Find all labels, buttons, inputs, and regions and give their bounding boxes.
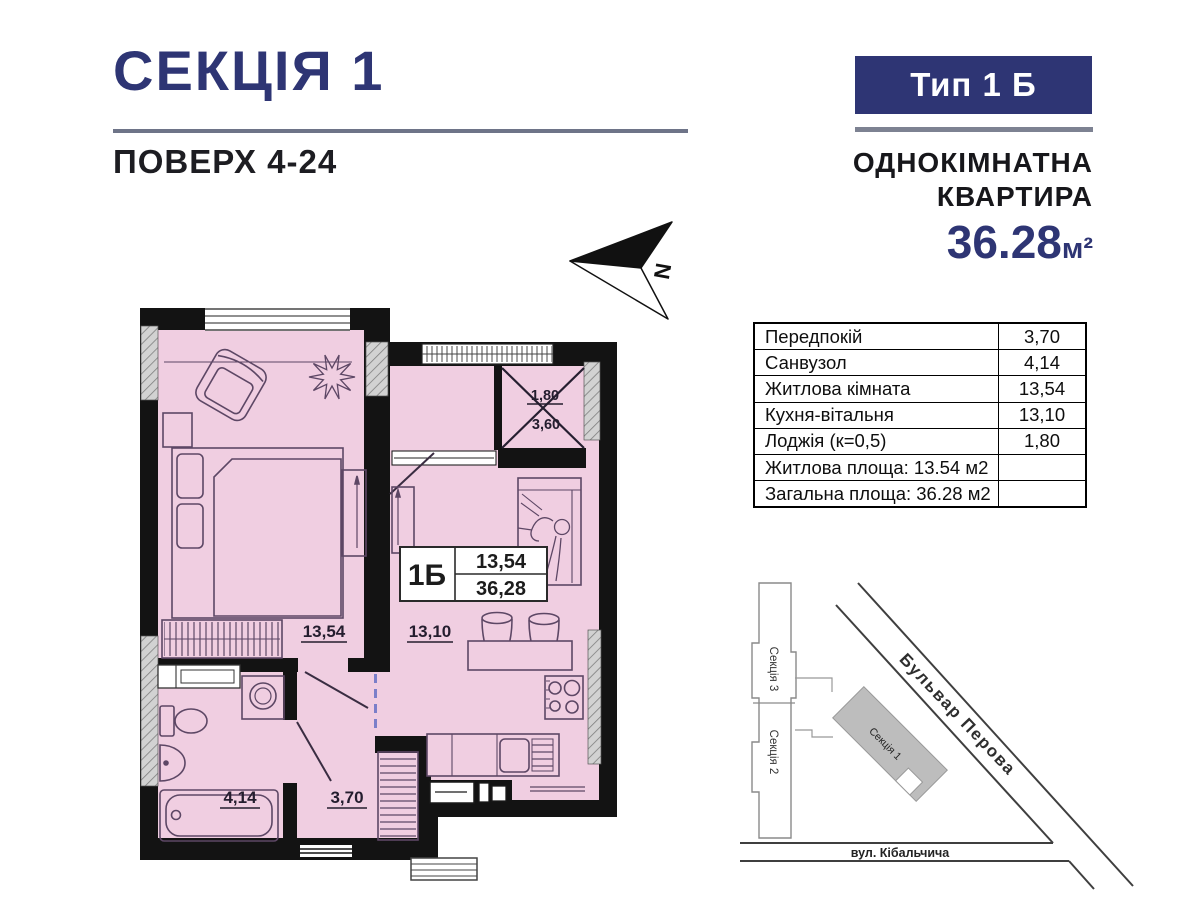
section3-label: Секція 3: [767, 647, 779, 692]
north-arrow: N: [570, 222, 676, 319]
hall-area-label: 3,70: [330, 788, 363, 807]
kitchen-table: [468, 641, 572, 670]
unit-info-box: 1Б 13,54 36,28: [400, 547, 547, 601]
stove: [545, 676, 583, 719]
loggia-length-label: 3,60: [532, 417, 560, 433]
north-label: N: [649, 261, 676, 281]
drawing-canvas: 1Б 13,54 36,28 13,54 13,10 4,14 3,70 1,8…: [0, 0, 1200, 918]
kitchen-area-label: 13,10: [409, 622, 452, 641]
unit-living-area: 13,54: [476, 551, 527, 573]
site-plan: Секція 3 Секція 2 Секція 1 Бульвар Перов…: [740, 583, 1133, 889]
wall-shelf: [158, 665, 240, 688]
street-label: вул. Кібальчича: [851, 846, 951, 860]
wardrobe: [162, 620, 282, 658]
bathroom-area-label: 4,14: [223, 788, 257, 807]
living-window: [201, 307, 354, 331]
section2-label: Секція 2: [767, 730, 779, 775]
building-sections-2-3: [752, 583, 796, 838]
kitchen-window: [422, 344, 553, 364]
hall-wardrobe: [378, 752, 418, 840]
counter-sink: [427, 734, 559, 776]
unit-total-area: 36,28: [476, 578, 526, 600]
unit-type-label: 1Б: [408, 559, 446, 592]
streets: [740, 583, 1133, 889]
loggia-width-label: 1,80: [531, 388, 559, 404]
floor-plan: 1Б 13,54 36,28 13,54 13,10 4,14 3,70 1,8…: [140, 307, 617, 880]
living-area-label: 13,54: [303, 622, 346, 641]
